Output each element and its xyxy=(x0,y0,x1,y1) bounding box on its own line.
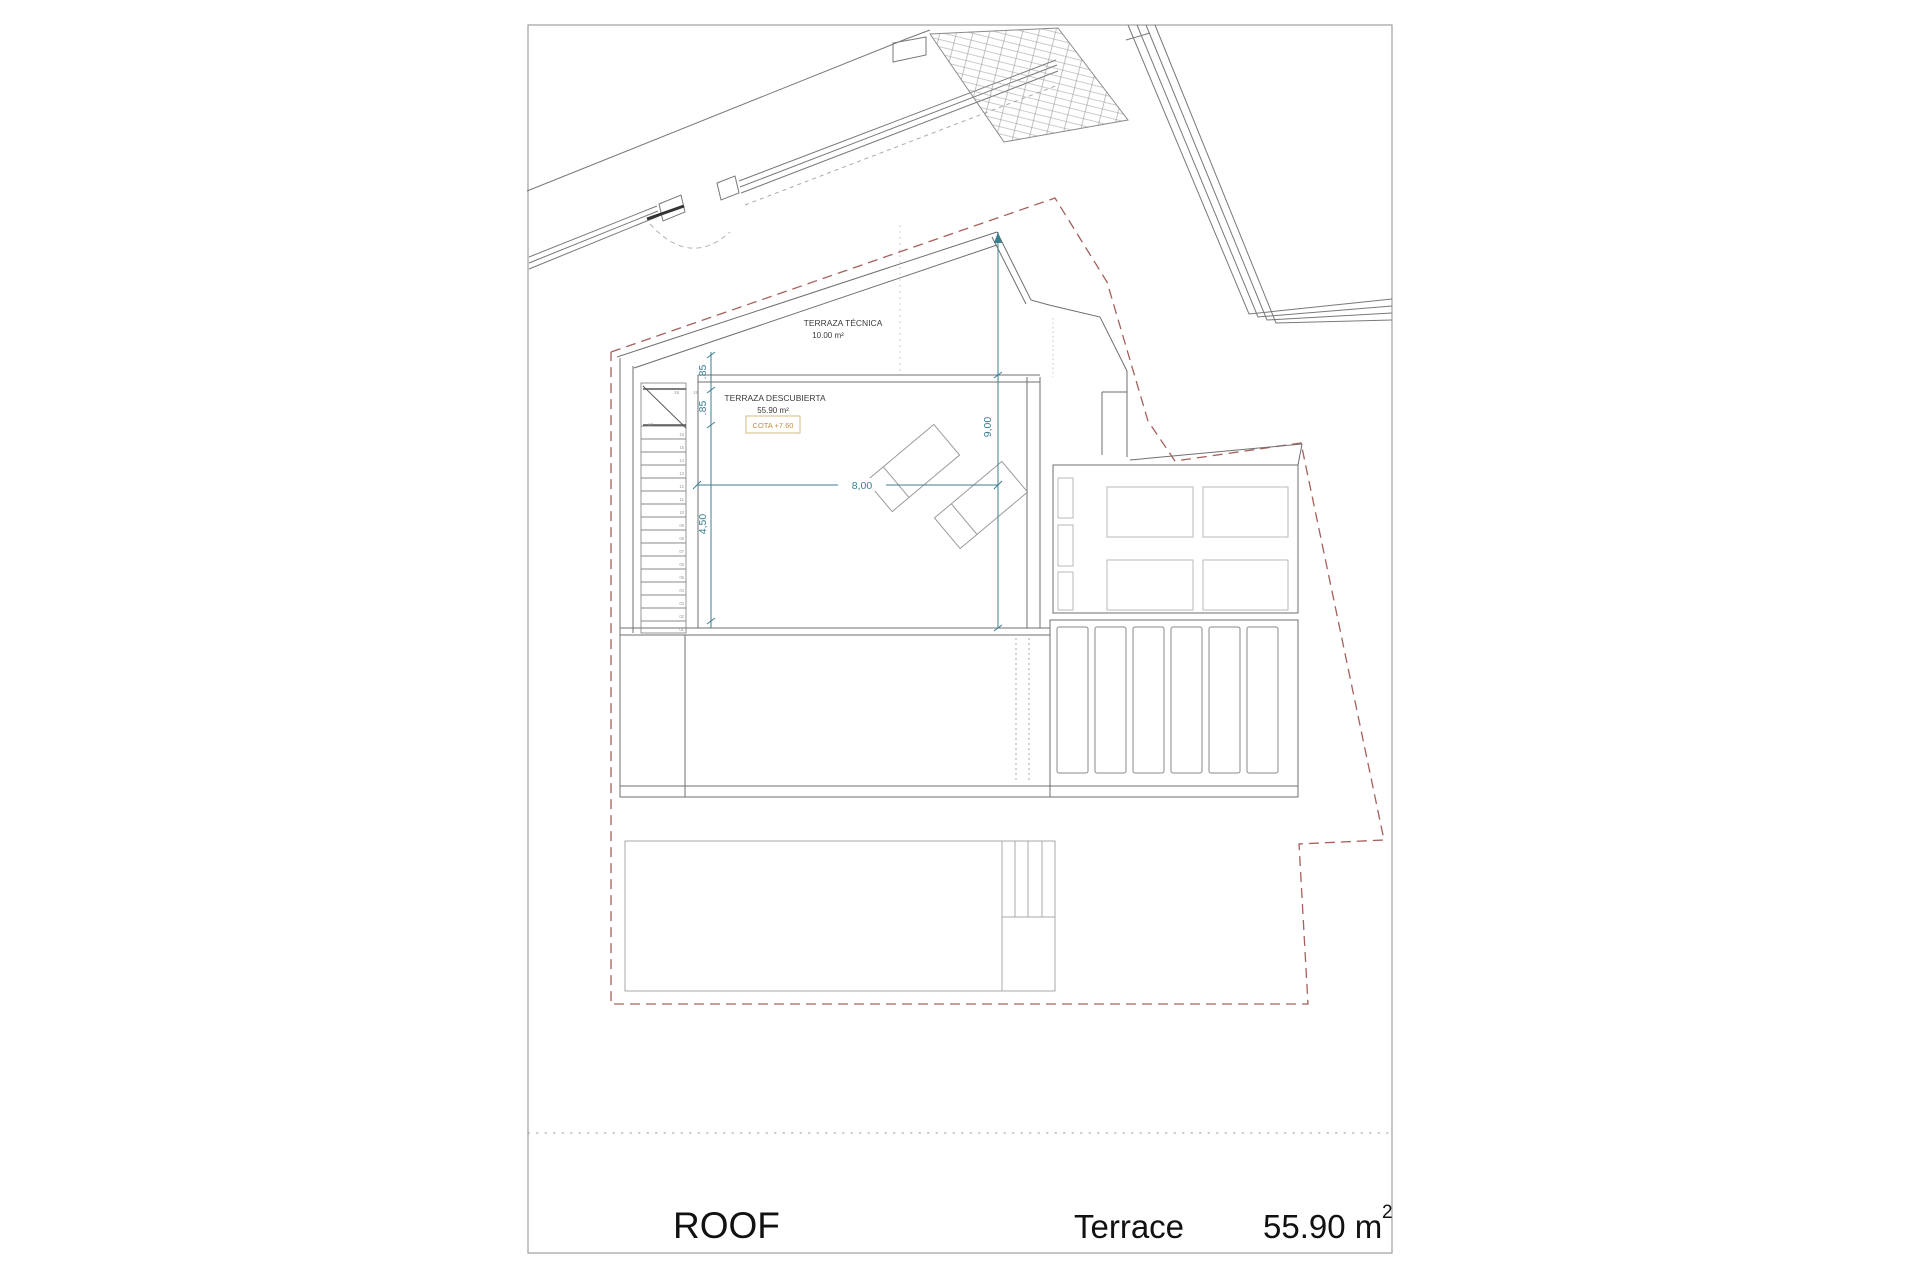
dim-085-top: .85 xyxy=(697,365,709,380)
terraza-tecnica-area: 10.00 m² xyxy=(812,331,844,340)
svg-text:08: 08 xyxy=(679,536,684,541)
area-value: 55.90 m xyxy=(1263,1208,1382,1245)
dim-900: 9,00 xyxy=(982,417,994,438)
svg-text:15: 15 xyxy=(679,445,684,450)
dim-085-mid: .85 xyxy=(697,401,709,416)
terraza-descubierta-label: TERRAZA DESCUBIERTA xyxy=(724,393,826,403)
terraza-descubierta-area: 55.90 m² xyxy=(757,406,789,415)
svg-text:05: 05 xyxy=(679,575,684,580)
svg-text:06: 06 xyxy=(679,562,684,567)
cota-badge: COTA +7.60 xyxy=(746,416,800,433)
space-title: Terrace xyxy=(1074,1208,1184,1245)
roof-plan-drawing: 01 02 03 04 05 06 07 08 09 10 11 12 13 1… xyxy=(0,0,1920,1280)
svg-text:13: 13 xyxy=(679,471,684,476)
sheet-border xyxy=(528,25,1392,1253)
svg-text:19: 19 xyxy=(693,390,699,395)
floor-title: ROOF xyxy=(673,1205,780,1246)
svg-text:03: 03 xyxy=(679,601,684,606)
svg-text:12: 12 xyxy=(679,484,684,489)
svg-text:02: 02 xyxy=(679,614,684,619)
svg-text:07: 07 xyxy=(679,549,684,554)
svg-text:14: 14 xyxy=(679,458,684,463)
svg-text:10: 10 xyxy=(679,510,684,515)
cota-label: COTA +7.60 xyxy=(753,421,794,430)
svg-text:16: 16 xyxy=(679,432,684,437)
terraza-tecnica-label: TERRAZA TÉCNICA xyxy=(804,318,883,328)
svg-text:09: 09 xyxy=(679,523,684,528)
svg-text:18: 18 xyxy=(674,390,680,395)
svg-text:04: 04 xyxy=(679,588,684,593)
area-superscript: 2 xyxy=(1382,1202,1393,1223)
svg-text:01: 01 xyxy=(679,627,684,632)
dim-450: 4,50 xyxy=(697,514,709,535)
svg-text:11: 11 xyxy=(680,497,685,502)
svg-text:17: 17 xyxy=(648,422,654,427)
dim-800: 8,00 xyxy=(852,480,873,492)
